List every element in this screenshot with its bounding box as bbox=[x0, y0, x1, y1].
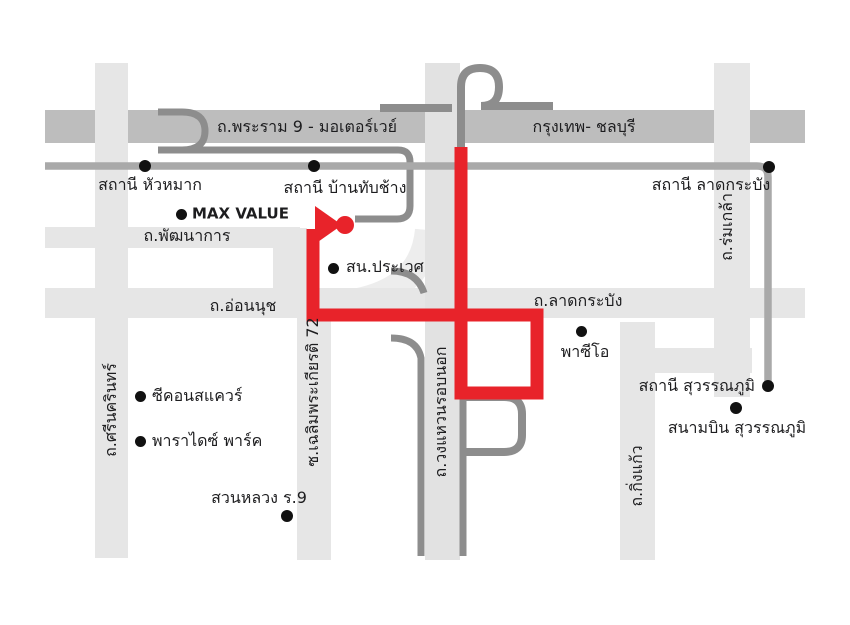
dot-station-hua-mak bbox=[139, 160, 151, 172]
road-srinakarin bbox=[95, 63, 128, 558]
road-srinakarin-label: ถ.ศรีนครินทร์ bbox=[103, 363, 119, 457]
road-phatthanakan-label: ถ.พัฒนาการ bbox=[144, 228, 231, 244]
map-canvas: ถ.พระราม 9 - มอเตอร์เวย์กรุงเทพ- ชลบุรีส… bbox=[0, 0, 850, 625]
destination-dot bbox=[336, 216, 354, 234]
road-lat-krabang-label: ถ.ลาดกระบัง bbox=[534, 293, 623, 309]
ramp-east-loop bbox=[462, 397, 522, 452]
road-network bbox=[0, 0, 850, 625]
dot-max-value bbox=[176, 209, 187, 220]
road-chalerm-prakiat-72-label: ซ.เฉลิมพระเกียรติ 72 bbox=[305, 317, 321, 466]
dot-paseo bbox=[576, 326, 587, 337]
poi-suan-luang-r9-label: สวนหลวง ร.9 bbox=[211, 490, 307, 506]
dot-seacon-square bbox=[135, 391, 146, 402]
poi-seacon-square-label: ซีคอนสแควร์ bbox=[152, 388, 242, 404]
poi-max-value-label: MAX VALUE bbox=[192, 207, 289, 222]
road-king-kaew bbox=[620, 322, 655, 560]
road-king-kaew-label: ถ.กิ่งแก้ว bbox=[629, 445, 645, 506]
dot-station-suvarnabhumi bbox=[762, 380, 774, 392]
road-rama9-motorway-label: ถ.พระราม 9 - มอเตอร์เวย์ bbox=[217, 119, 397, 135]
road-bangkok-chonburi-label: กรุงเทพ- ชลบุรี bbox=[533, 119, 636, 135]
station-lat-krabang-label: สถานี ลาดกระบัง bbox=[652, 177, 770, 193]
road-on-nut-label: ถ.อ่อนนุช bbox=[210, 298, 277, 314]
road-outer-ring-label: ถ.วงแหวนรอบนอก bbox=[433, 347, 449, 478]
ring-road-left-edge bbox=[391, 338, 421, 556]
road-rom-klao-label: ถ.ร่มเกล้า bbox=[719, 193, 735, 261]
station-ban-thap-chang-label: สถานี บ้านทับช้าง bbox=[284, 180, 407, 196]
dot-suvarnabhumi-airport bbox=[730, 402, 742, 414]
dot-paradise-park bbox=[135, 436, 146, 447]
poi-suvarnabhumi-airport-label: สนามบิน สุวรรณภูมิ bbox=[668, 420, 806, 436]
poi-paseo-label: พาซีโอ bbox=[561, 344, 610, 360]
dot-station-ban-thap-chang bbox=[308, 160, 320, 172]
station-hua-mak-label: สถานี หัวหมาก bbox=[98, 177, 202, 193]
station-suvarnabhumi-label: สถานี สุวรรณภูมิ bbox=[639, 378, 755, 394]
dot-prawet-police bbox=[328, 263, 339, 274]
dot-station-lat-krabang bbox=[763, 161, 775, 173]
poi-paradise-park-label: พาราไดซ์ พาร์ค bbox=[152, 433, 262, 449]
dot-suan-luang-r9 bbox=[281, 510, 293, 522]
poi-prawet-police-label: สน.ประเวศ bbox=[346, 259, 424, 275]
